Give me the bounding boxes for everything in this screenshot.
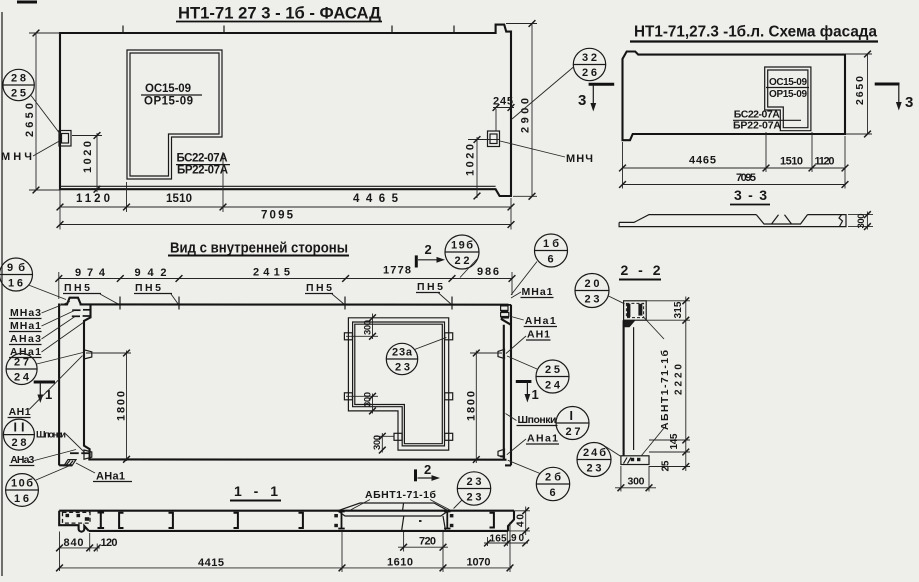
svg-text:720: 720 (419, 536, 436, 548)
svg-text:245: 245 (493, 96, 513, 108)
svg-text:АБНТ1-71-1б: АБНТ1-71-1б (659, 350, 671, 431)
svg-text:МНа1: МНа1 (10, 320, 41, 332)
svg-text:24: 24 (14, 372, 30, 384)
svg-text:24б: 24б (583, 447, 606, 459)
svg-text:1510: 1510 (780, 156, 803, 168)
svg-text:300: 300 (628, 476, 645, 488)
svg-text:БР22-07А: БР22-07А (177, 165, 228, 177)
svg-text:ОС15-09: ОС15-09 (769, 77, 807, 88)
svg-text:МНа1: МНа1 (522, 286, 553, 298)
svg-text:АНа1: АНа1 (96, 471, 125, 483)
svg-text:25: 25 (661, 460, 672, 471)
svg-text:ОР15-09: ОР15-09 (769, 89, 807, 100)
svg-text:БС22-07А: БС22-07А (177, 153, 228, 165)
svg-text:АНа1: АНа1 (527, 433, 558, 445)
svg-text:АНа1: АНа1 (525, 315, 556, 327)
svg-text:7095: 7095 (261, 210, 294, 222)
svg-text:3: 3 (905, 94, 913, 111)
svg-text:300: 300 (856, 214, 867, 229)
svg-text:6: 6 (550, 487, 556, 499)
svg-text:АБНТ1-71-1б: АБНТ1-71-1б (365, 489, 437, 501)
svg-text:4415: 4415 (198, 557, 224, 569)
svg-text:АНа3: АНа3 (10, 333, 41, 345)
svg-text:942: 942 (135, 267, 167, 279)
svg-text:90: 90 (511, 533, 524, 544)
svg-text:1: 1 (532, 387, 539, 402)
svg-text:АН1: АН1 (9, 406, 31, 418)
svg-text:1778: 1778 (383, 265, 411, 277)
svg-text:145: 145 (669, 433, 680, 449)
svg-text:Шпонки: Шпонки (518, 414, 557, 426)
svg-text:3: 3 (578, 92, 586, 109)
svg-text:БР22-07А: БР22-07А (733, 120, 781, 132)
svg-text:1800: 1800 (465, 391, 477, 421)
svg-text:МНЧ: МНЧ (1, 151, 32, 163)
svg-text:НТ1-71 27 3 - 1б - ФАСАД: НТ1-71 27 3 - 1б - ФАСАД (178, 4, 381, 23)
svg-text:ПН5: ПН5 (417, 281, 443, 293)
svg-text:1070: 1070 (467, 557, 491, 569)
svg-text:10б: 10б (11, 478, 33, 490)
svg-text:165: 165 (490, 534, 507, 545)
svg-text:Вид с внутренней стороны: Вид с внутренней стороны (170, 240, 348, 257)
svg-text:ПН5: ПН5 (135, 282, 161, 294)
svg-text:1510: 1510 (166, 193, 192, 205)
svg-text:974: 974 (75, 267, 106, 279)
svg-text:НТ1-71,27.3 -1б.л. Схема фасад: НТ1-71,27.3 -1б.л. Схема фасада (634, 24, 877, 41)
svg-text:315: 315 (673, 301, 684, 318)
svg-text:АНа3: АНа3 (10, 454, 34, 466)
svg-text:Шпонки: Шпонки (36, 430, 66, 441)
svg-text:2 - 2: 2 - 2 (621, 262, 661, 278)
svg-text:3 - 3: 3 - 3 (734, 187, 767, 203)
svg-text:6: 6 (548, 254, 554, 266)
svg-text:2: 2 (425, 242, 432, 257)
svg-text:19б: 19б (451, 240, 473, 252)
svg-text:2650: 2650 (854, 76, 866, 105)
svg-text:986: 986 (477, 266, 499, 278)
svg-text:7095: 7095 (736, 172, 756, 184)
svg-text:840: 840 (64, 537, 84, 549)
svg-text:2: 2 (424, 462, 431, 477)
svg-text:300: 300 (362, 392, 373, 407)
svg-text:ОР15-09: ОР15-09 (144, 96, 193, 108)
svg-text:МНЧ: МНЧ (566, 153, 593, 165)
svg-text:ПН5: ПН5 (306, 282, 332, 294)
svg-text:24: 24 (545, 380, 561, 392)
svg-text:40: 40 (516, 514, 527, 527)
svg-text:120: 120 (101, 537, 118, 549)
svg-text:АН1: АН1 (527, 329, 550, 341)
svg-text:300: 300 (363, 320, 374, 335)
svg-text:23а: 23а (392, 347, 413, 359)
svg-text:1 - 1: 1 - 1 (234, 483, 278, 499)
svg-text:1610: 1610 (387, 557, 413, 569)
svg-text:300: 300 (372, 435, 383, 450)
svg-text:МНа3: МНа3 (10, 307, 41, 319)
svg-text:I: I (570, 409, 573, 423)
svg-text:1800: 1800 (116, 391, 128, 421)
svg-text:ПН5: ПН5 (64, 282, 90, 294)
svg-text:ОС15-09: ОС15-09 (145, 83, 191, 95)
svg-text:1120: 1120 (815, 156, 835, 168)
svg-text:4465: 4465 (689, 155, 716, 167)
